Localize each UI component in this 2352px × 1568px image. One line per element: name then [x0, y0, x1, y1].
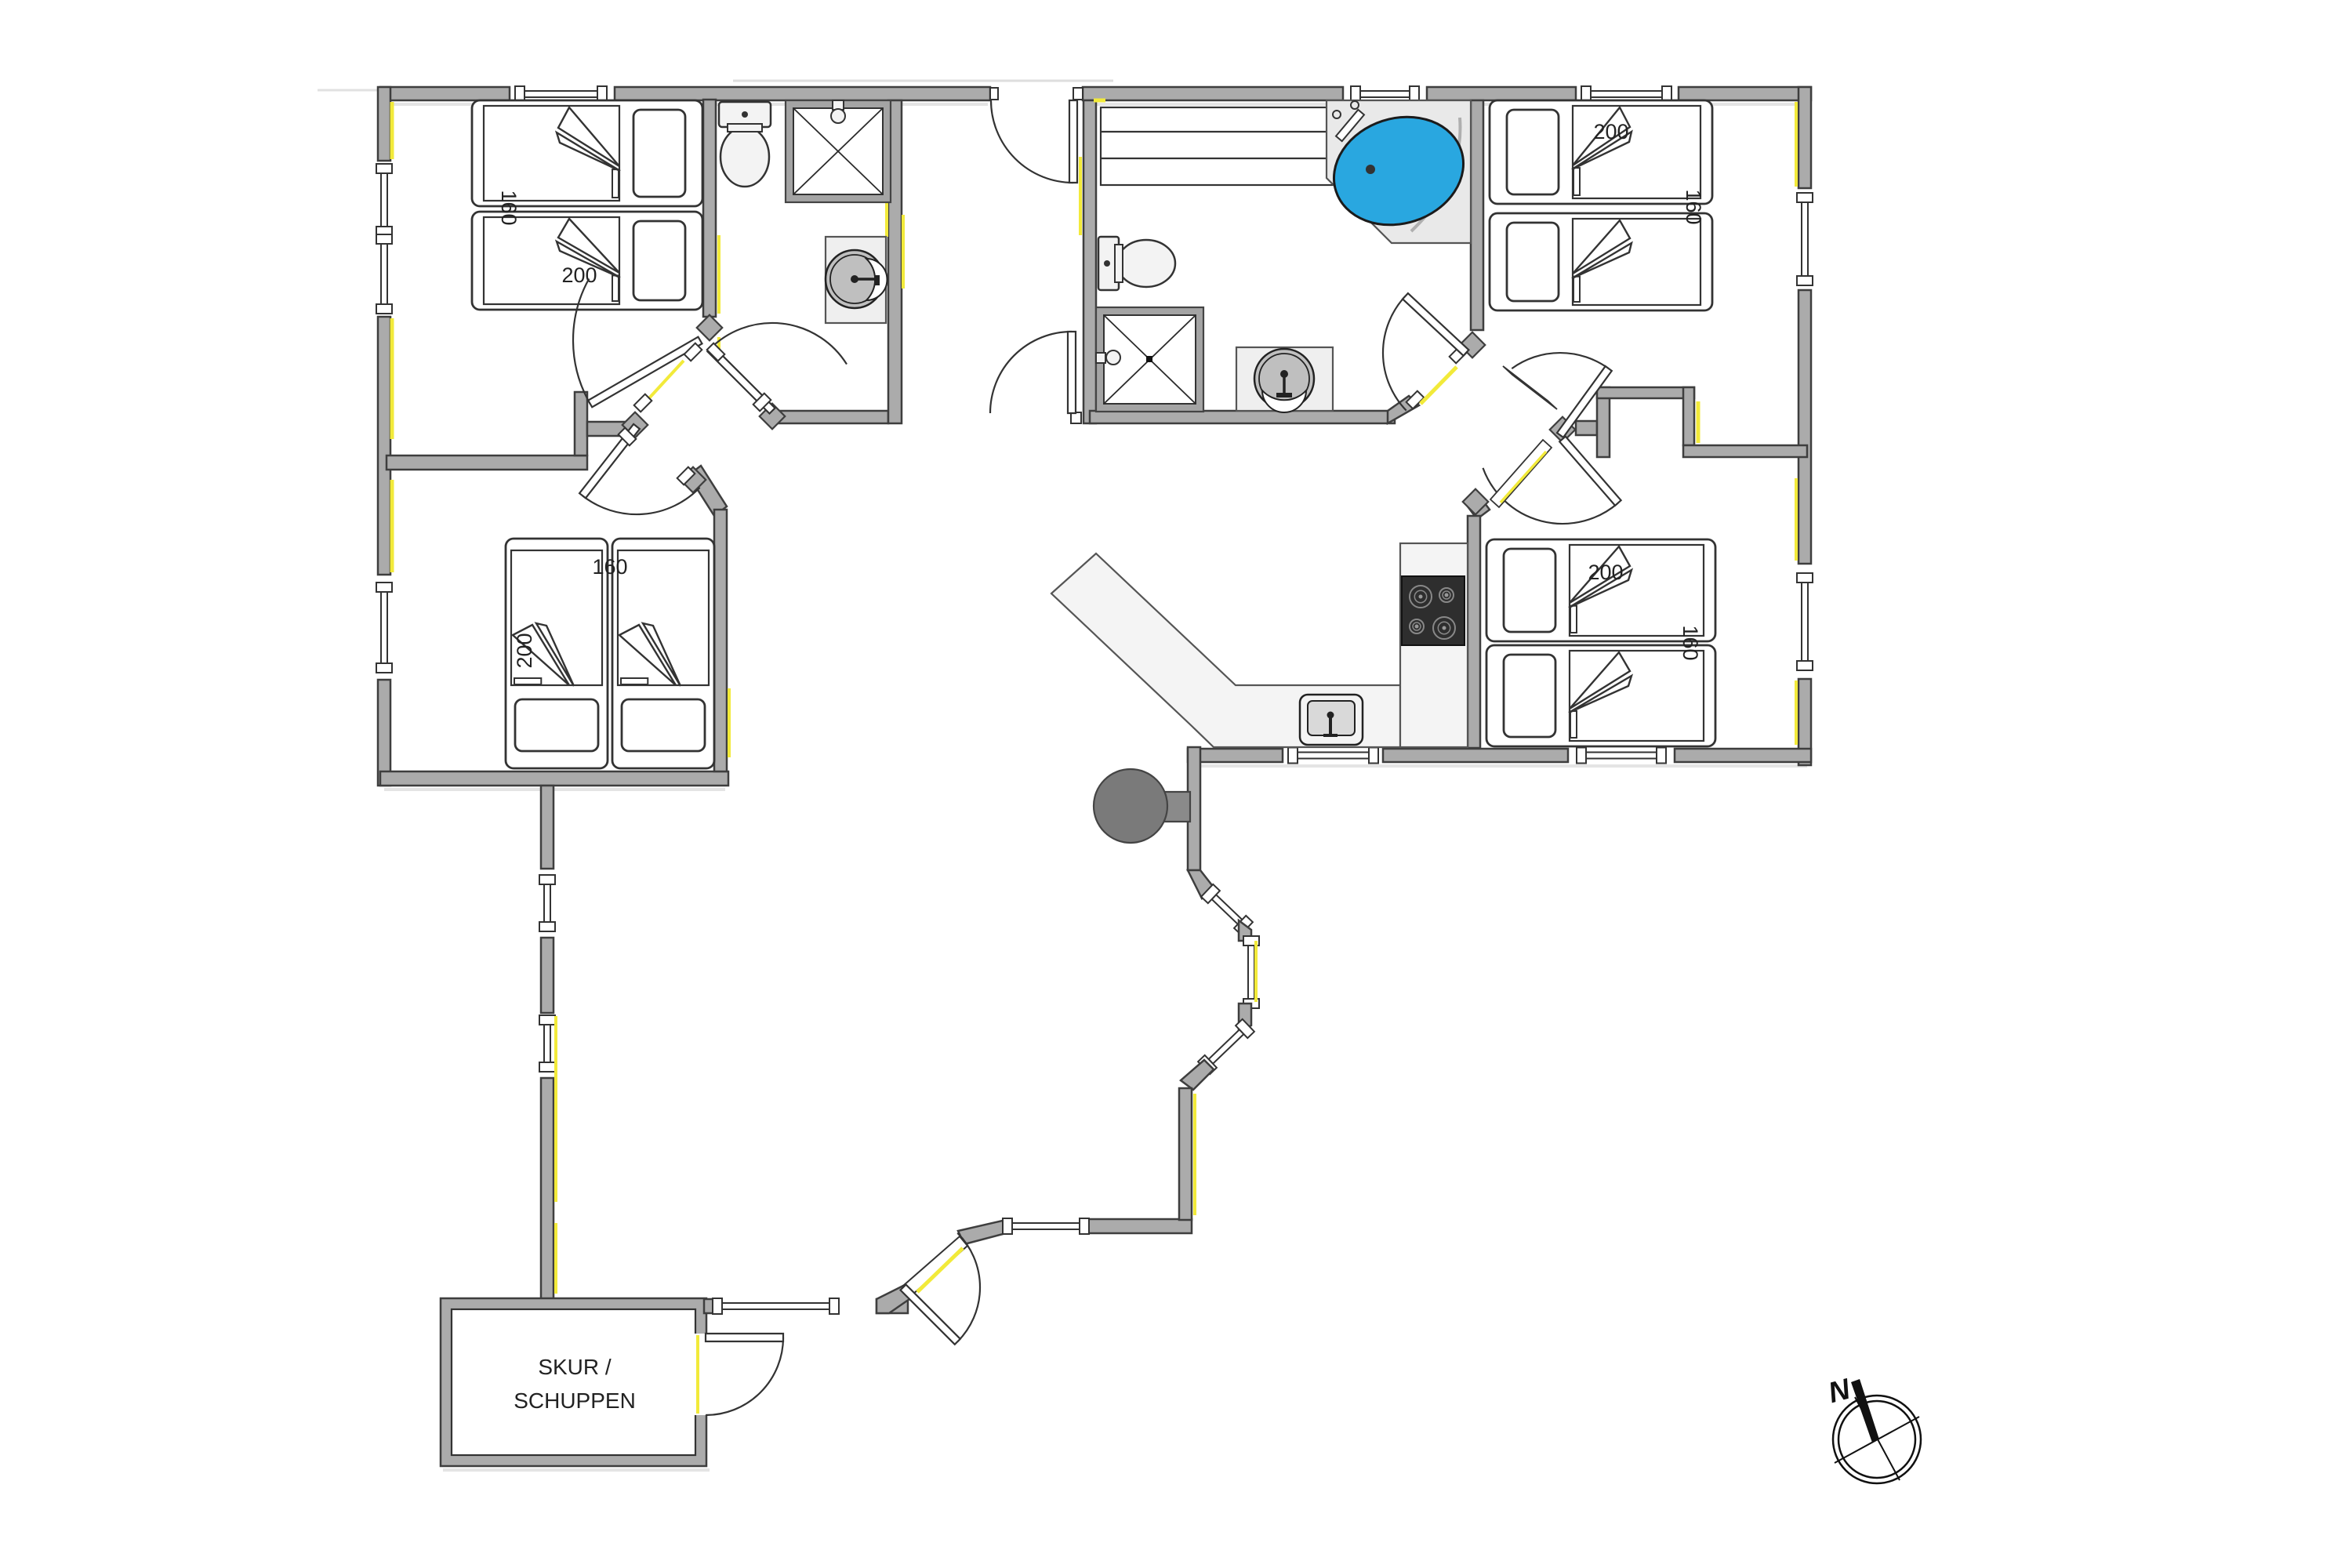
svg-text:200: 200 [513, 633, 536, 668]
svg-text:160: 160 [1682, 189, 1705, 224]
svg-text:160: 160 [497, 190, 521, 225]
svg-text:160: 160 [592, 555, 627, 579]
svg-text:SKUR /: SKUR / [538, 1355, 612, 1379]
svg-text:200: 200 [1593, 120, 1628, 143]
svg-text:SCHUPPEN: SCHUPPEN [514, 1388, 636, 1413]
svg-text:160: 160 [1679, 625, 1702, 660]
svg-text:200: 200 [1588, 561, 1623, 584]
svg-text:200: 200 [561, 263, 597, 287]
